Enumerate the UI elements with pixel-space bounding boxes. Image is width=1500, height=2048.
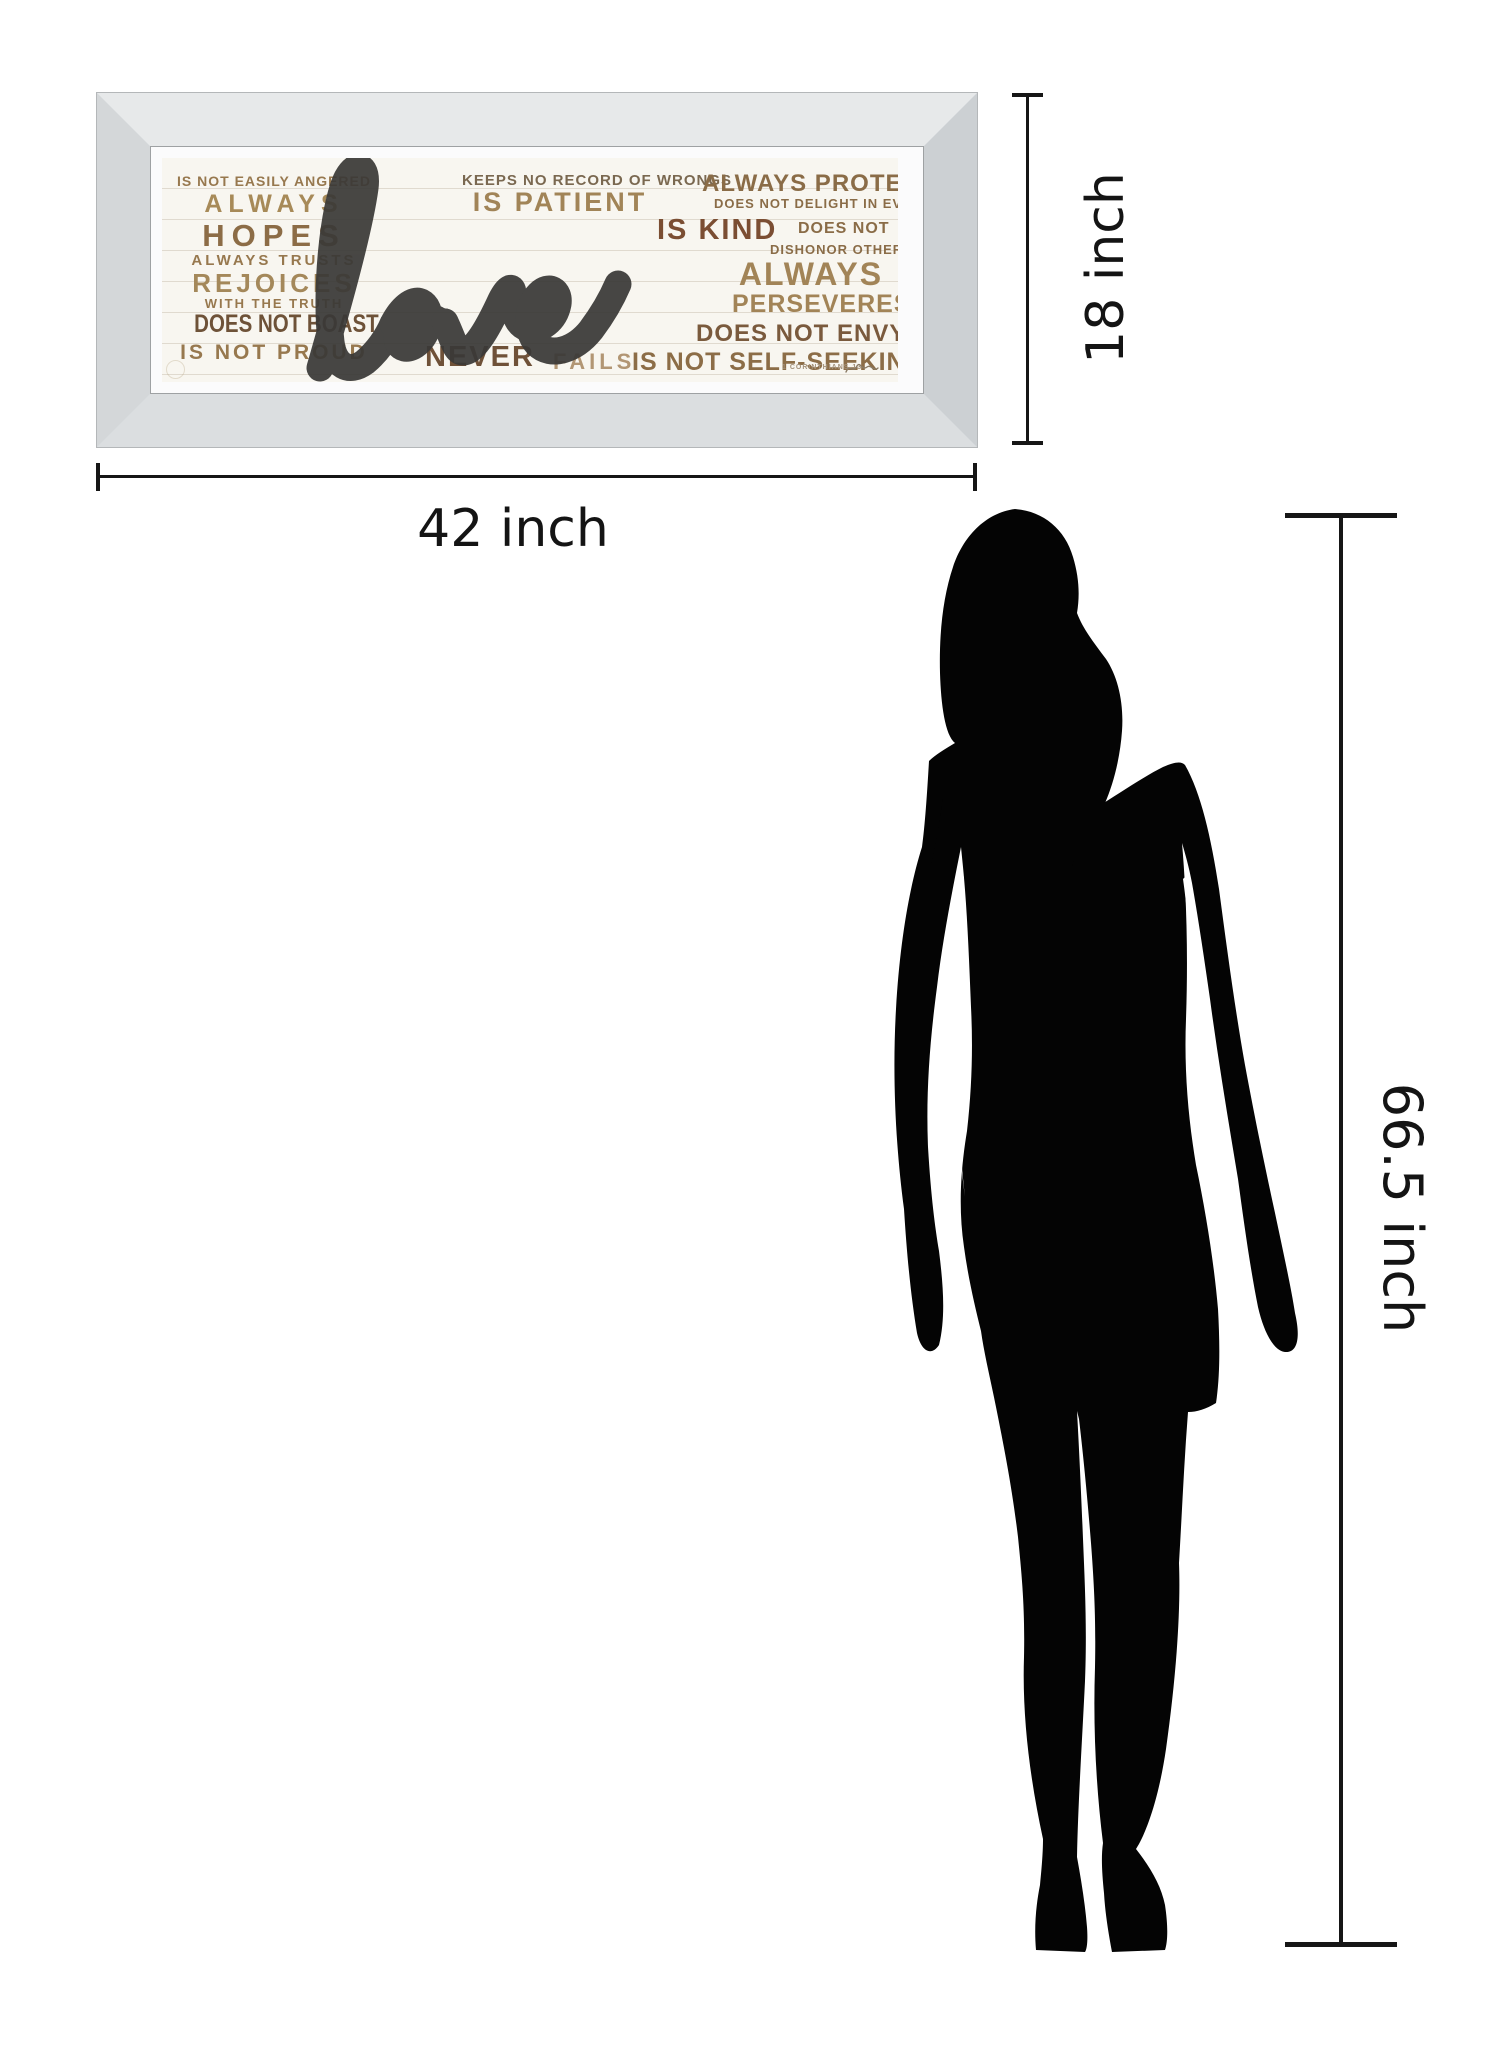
mirror-frame: IS NOT EASILY ANGERED ALWAYS HOPES ALWAY…: [97, 93, 977, 447]
art-text-right-4: DOES NOT: [798, 221, 890, 237]
width-dimension-tick-right: [973, 463, 977, 491]
width-dimension-line: [97, 475, 977, 478]
woman-silhouette-icon: [865, 505, 1310, 1953]
width-dimension-tick-left: [96, 463, 100, 491]
product-dimension-diagram: IS NOT EASILY ANGERED ALWAYS HOPES ALWAY…: [0, 0, 1500, 2048]
love-script-word: [260, 158, 700, 382]
art-print: IS NOT EASILY ANGERED ALWAYS HOPES ALWAY…: [162, 158, 898, 382]
person-dimension-line: [1339, 516, 1343, 1946]
art-text-right-5: DISHONOR OTHERS: [770, 243, 894, 256]
width-dimension-label: 42 inch: [333, 503, 693, 555]
height-dimension-line: [1026, 95, 1029, 445]
art-text-right-1: ALWAYS PROTECTS: [702, 172, 898, 196]
height-dimension-label: 18 inch: [1080, 172, 1132, 364]
art-text-right-6: ALWAYS: [728, 258, 894, 290]
height-dimension-tick-bottom: [1012, 441, 1043, 445]
height-dimension-tick-top: [1012, 93, 1043, 97]
person-dimension-label: 66.5 inch: [1375, 1083, 1429, 1334]
art-text-right-2: DOES NOT DELIGHT IN EVIL: [714, 197, 894, 210]
art-text-right-8: DOES NOT ENVY: [696, 322, 896, 346]
artist-signature-icon: [844, 362, 880, 376]
art-text-right-7: PERSEVERES: [732, 292, 894, 317]
